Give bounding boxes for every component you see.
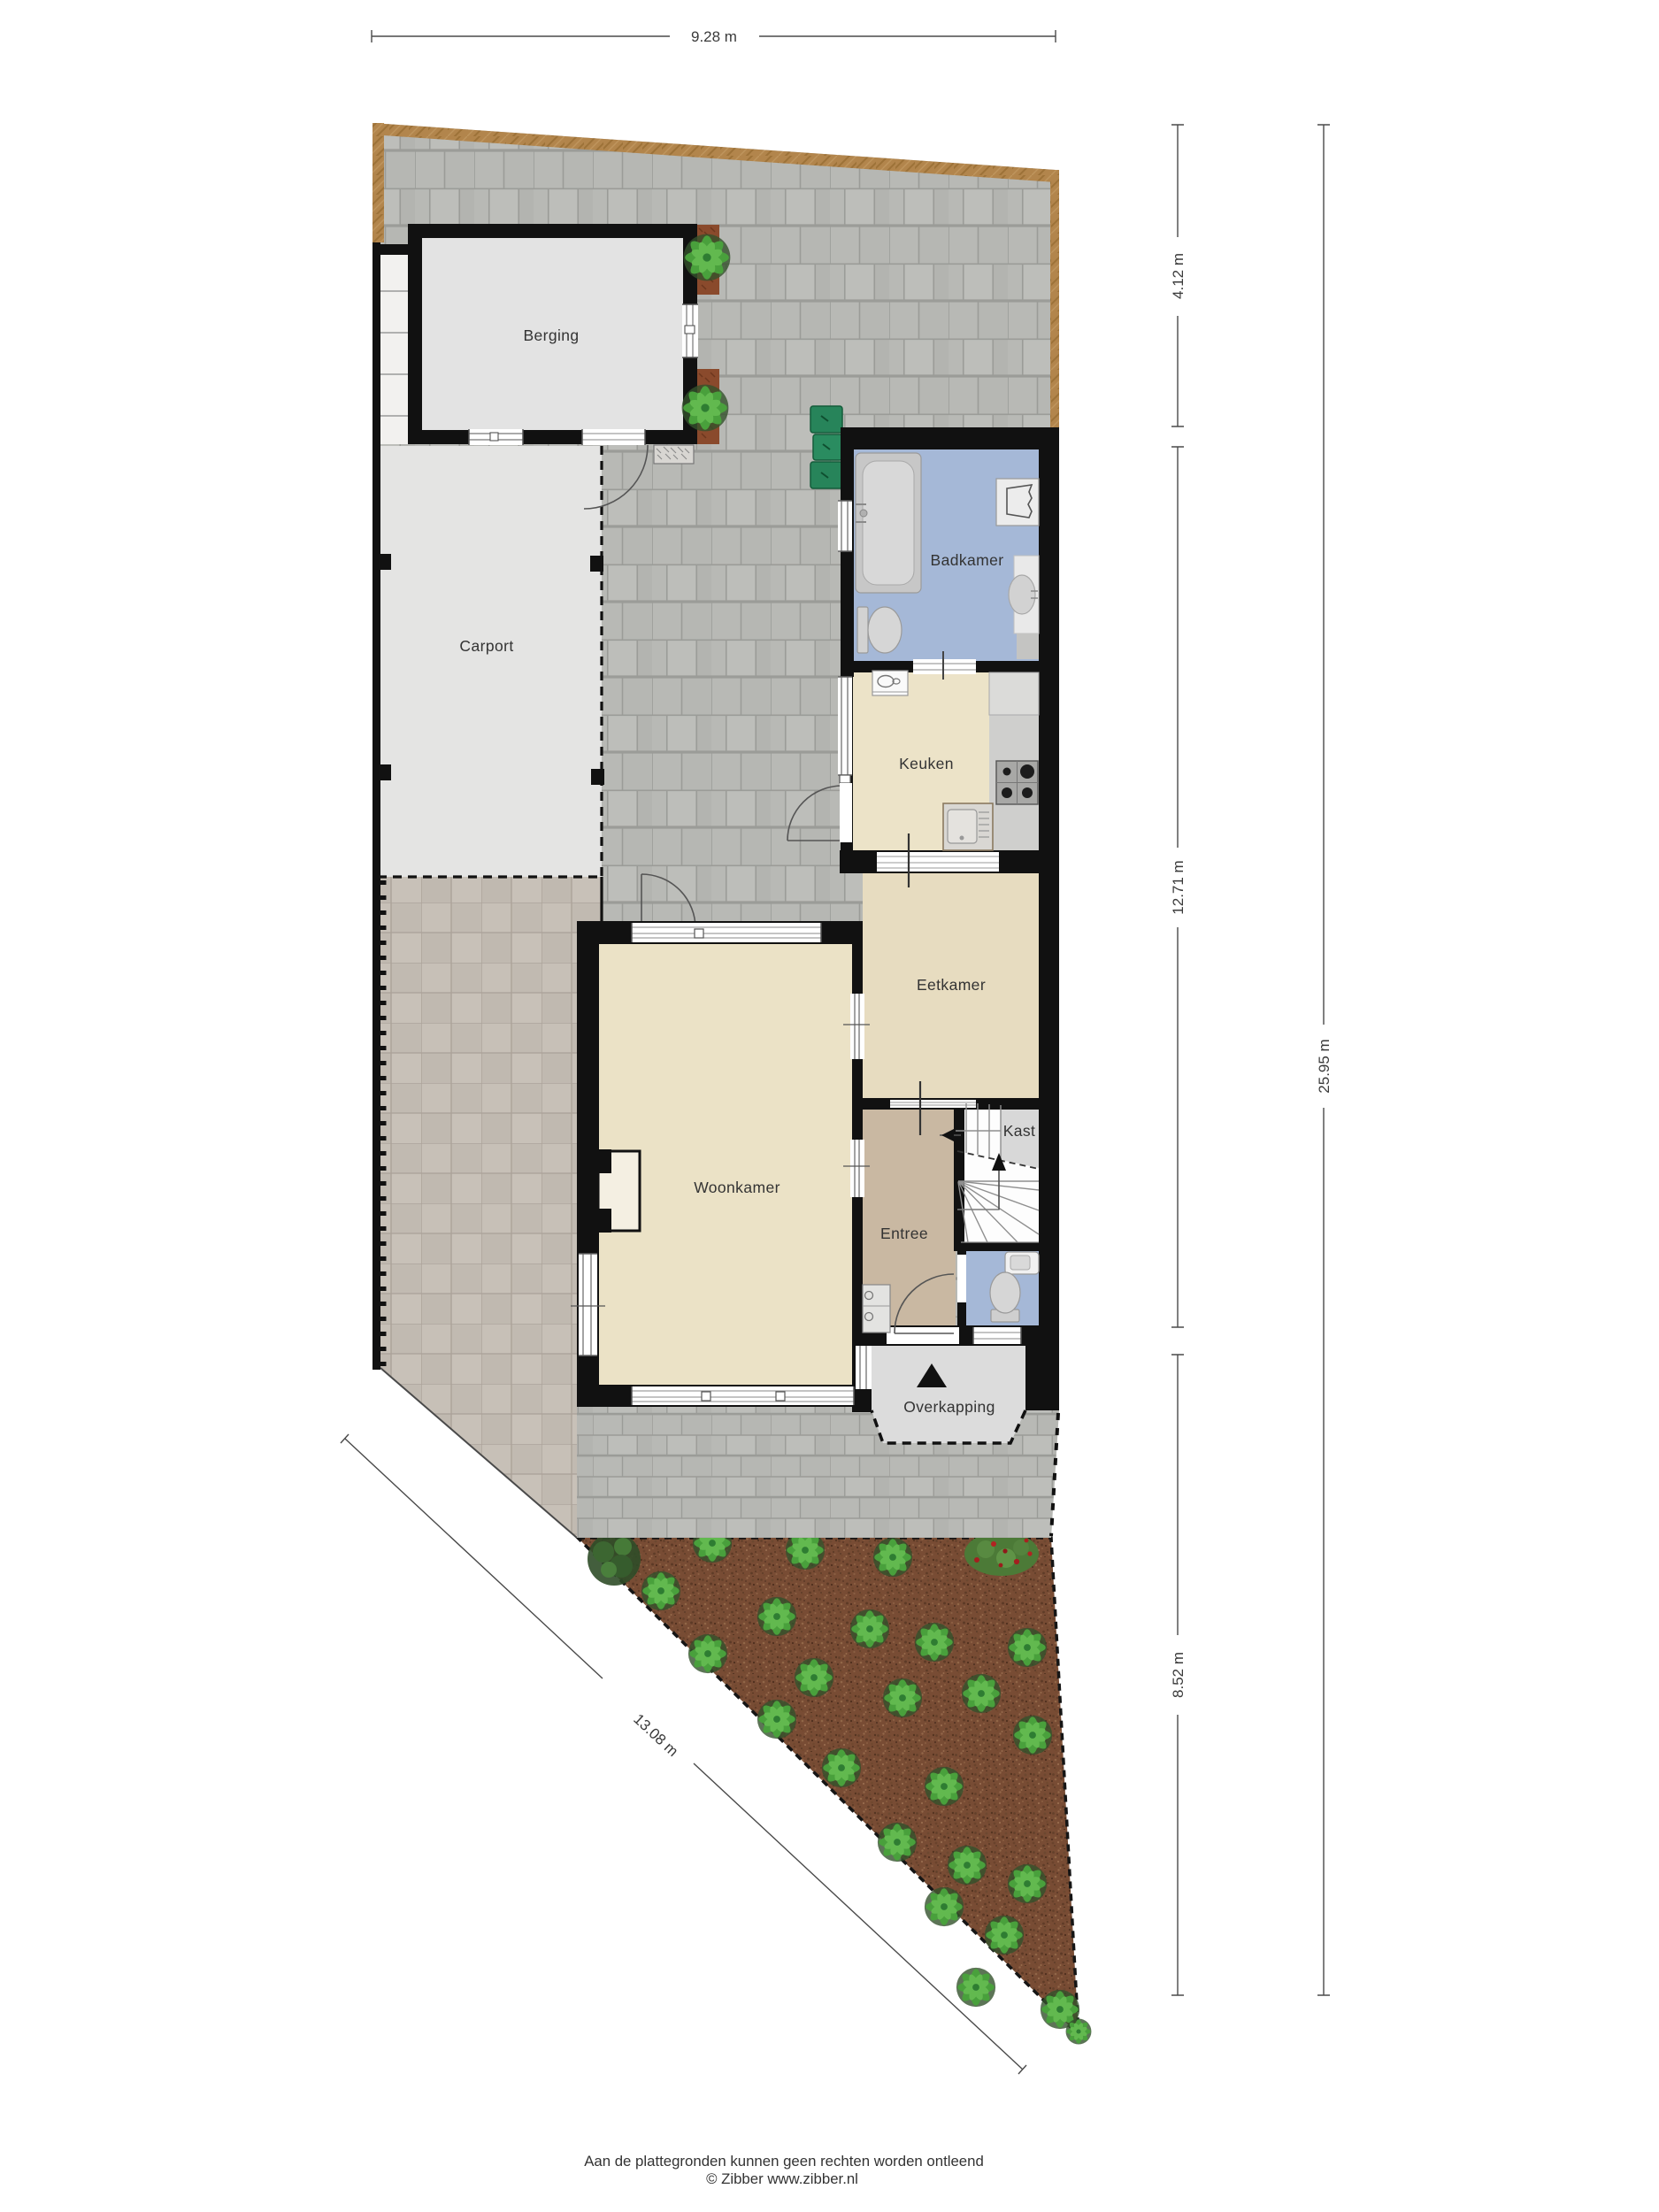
svg-text:Carport: Carport <box>459 637 513 655</box>
svg-text:9.28 m: 9.28 m <box>691 28 737 45</box>
svg-text:25.95 m: 25.95 m <box>1316 1039 1333 1093</box>
svg-text:Overkapping: Overkapping <box>903 1398 995 1416</box>
svg-text:Keuken: Keuken <box>899 755 954 772</box>
svg-text:Entree: Entree <box>880 1225 928 1242</box>
svg-text:Aan de plattegronden kunnen ge: Aan de plattegronden kunnen geen rechten… <box>584 2153 984 2170</box>
svg-text:8.52 m: 8.52 m <box>1170 1652 1187 1698</box>
svg-text:© Zibber www.zibber.nl: © Zibber www.zibber.nl <box>706 2170 858 2187</box>
svg-text:4.12 m: 4.12 m <box>1170 253 1187 299</box>
svg-text:Kast: Kast <box>1003 1122 1036 1140</box>
svg-text:Woonkamer: Woonkamer <box>694 1179 780 1196</box>
svg-text:Berging: Berging <box>523 326 579 344</box>
svg-text:Badkamer: Badkamer <box>931 551 1004 569</box>
svg-text:Eetkamer: Eetkamer <box>917 976 986 994</box>
svg-text:12.71 m: 12.71 m <box>1170 860 1187 914</box>
